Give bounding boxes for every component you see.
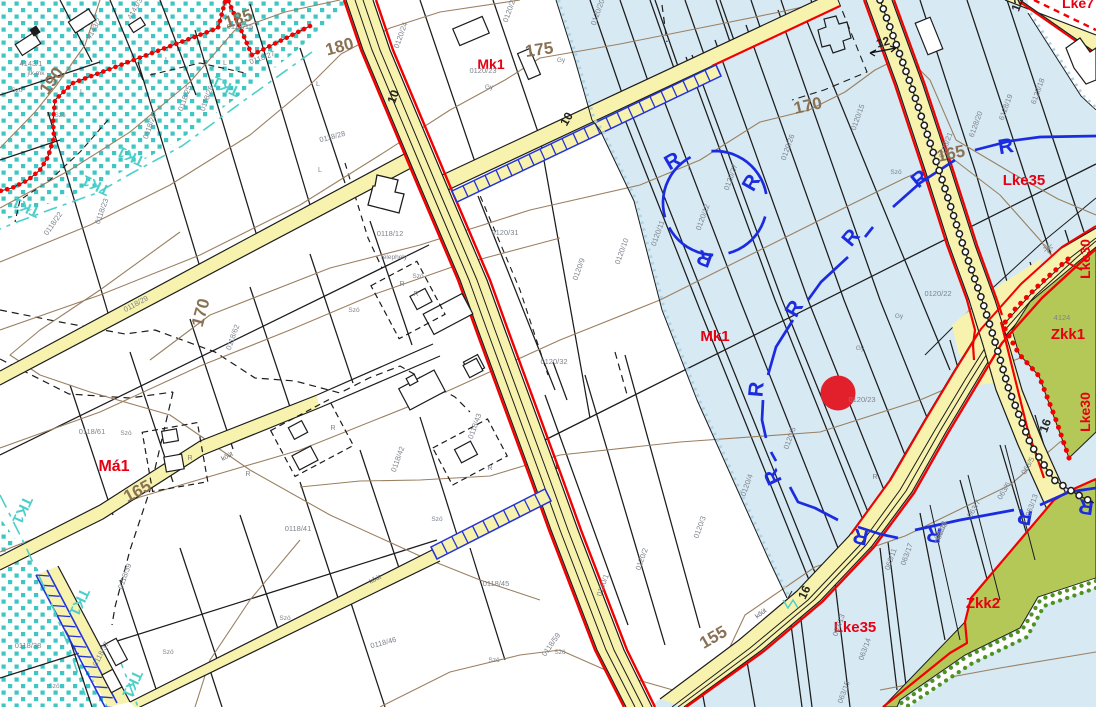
svg-text:0120/32: 0120/32 (540, 357, 567, 366)
svg-text:L: L (165, 57, 169, 64)
svg-text:L: L (80, 89, 84, 96)
svg-text:0118/61: 0118/61 (79, 427, 106, 436)
svg-text:R: R (413, 291, 418, 298)
svg-text:Szö: Szö (890, 169, 902, 176)
svg-text:Szö: Szö (120, 430, 132, 437)
svg-text:Gy: Gy (895, 313, 904, 320)
svg-text:4143/1: 4143/1 (20, 59, 43, 68)
svg-text:Szö: Szö (279, 615, 291, 622)
svg-text:Szö: Szö (431, 516, 443, 523)
svg-text:Lke7: Lke7 (1062, 0, 1094, 11)
svg-text:Lke30: Lke30 (1077, 239, 1093, 279)
svg-text:0118/12: 0118/12 (377, 229, 404, 238)
svg-text:Mk1: Mk1 (700, 328, 729, 345)
svg-text:R: R (872, 474, 877, 481)
svg-text:R: R (330, 425, 335, 432)
svg-text:Lke30: Lke30 (1077, 392, 1093, 432)
svg-text:0118/45: 0118/45 (483, 579, 510, 588)
svg-text:telephely: telephely (381, 254, 408, 261)
svg-text:Szö: Szö (54, 112, 66, 119)
svg-text:Gy: Gy (557, 57, 566, 64)
svg-text:R: R (744, 381, 768, 398)
svg-text:R: R (245, 471, 250, 478)
svg-text:L: L (223, 60, 227, 67)
svg-text:Szö: Szö (162, 649, 174, 656)
svg-text:Gy: Gy (485, 84, 494, 91)
svg-text:L: L (318, 167, 322, 174)
svg-text:Zkk1: Zkk1 (1051, 326, 1085, 343)
svg-text:0118/15: 0118/15 (227, 22, 254, 31)
svg-text:0120/22: 0120/22 (924, 289, 951, 298)
svg-text:Szö: Szö (48, 683, 60, 690)
svg-text:R: R (187, 455, 192, 462)
svg-text:4124: 4124 (1054, 313, 1071, 322)
svg-text:jtk mk: jtk mk (27, 70, 46, 77)
svg-text:L: L (688, 165, 692, 172)
svg-text:L: L (316, 81, 320, 88)
svg-text:175: 175 (524, 38, 555, 61)
svg-text:Zkk2: Zkk2 (966, 595, 1000, 612)
svg-text:Lke35: Lke35 (1003, 172, 1046, 189)
svg-text:R: R (487, 465, 492, 472)
svg-text:Szö: Szö (348, 307, 360, 314)
svg-text:0120/23: 0120/23 (848, 395, 875, 404)
svg-text:Gy: Gy (856, 345, 865, 352)
svg-text:0118/38: 0118/38 (15, 641, 42, 650)
svg-text:Szö: Szö (554, 649, 566, 656)
svg-text:R: R (399, 281, 404, 288)
svg-text:Má1: Má1 (98, 458, 129, 475)
svg-text:✳: ✳ (1042, 240, 1054, 256)
svg-text:0120/31: 0120/31 (491, 228, 518, 237)
svg-text:0118/41: 0118/41 (285, 524, 312, 533)
svg-text:0120/23: 0120/23 (469, 66, 496, 75)
svg-text:Szö: Szö (11, 87, 23, 94)
svg-text:Szö: Szö (488, 657, 500, 664)
svg-text:Szö: Szö (412, 273, 424, 280)
